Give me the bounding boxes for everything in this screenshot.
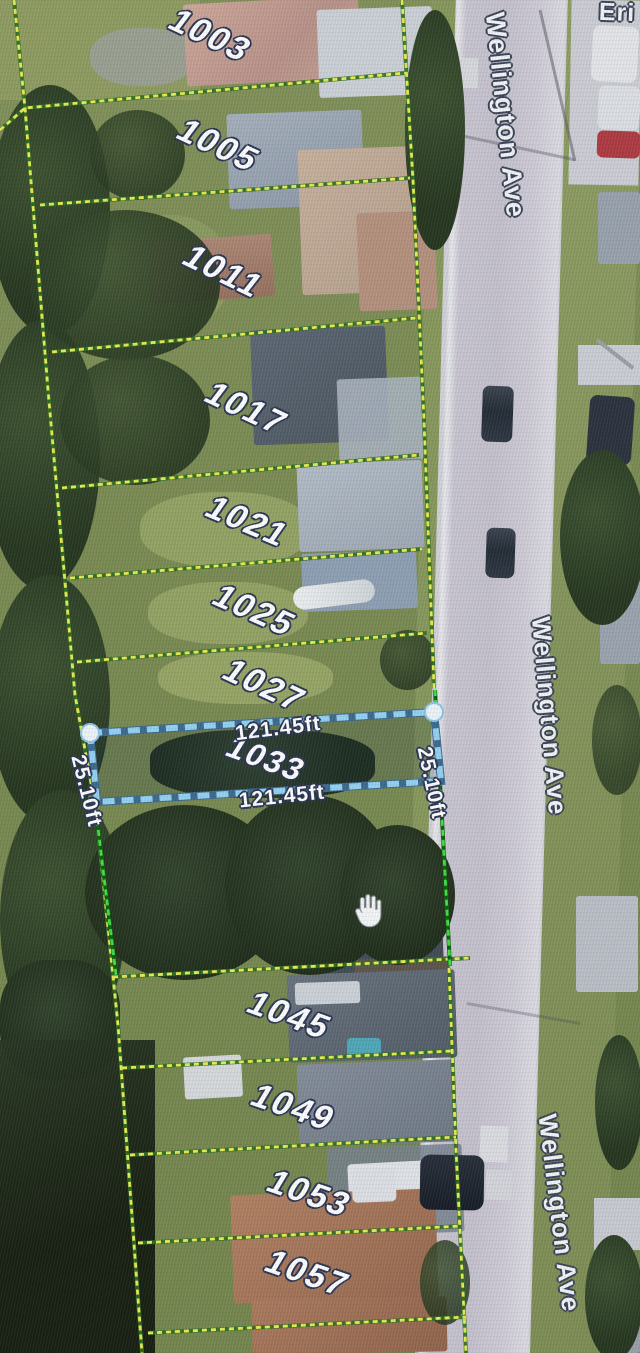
street-label-cross-street: Eri bbox=[598, 0, 635, 28]
parcel-vertex-handle[interactable] bbox=[425, 703, 443, 721]
parcel-vertex-handle[interactable] bbox=[81, 724, 99, 742]
map-canvas[interactable]: 1003 1005 1011 1017 1021 1025 1027 1033 … bbox=[0, 0, 640, 1353]
hand-cursor-icon bbox=[348, 886, 390, 936]
